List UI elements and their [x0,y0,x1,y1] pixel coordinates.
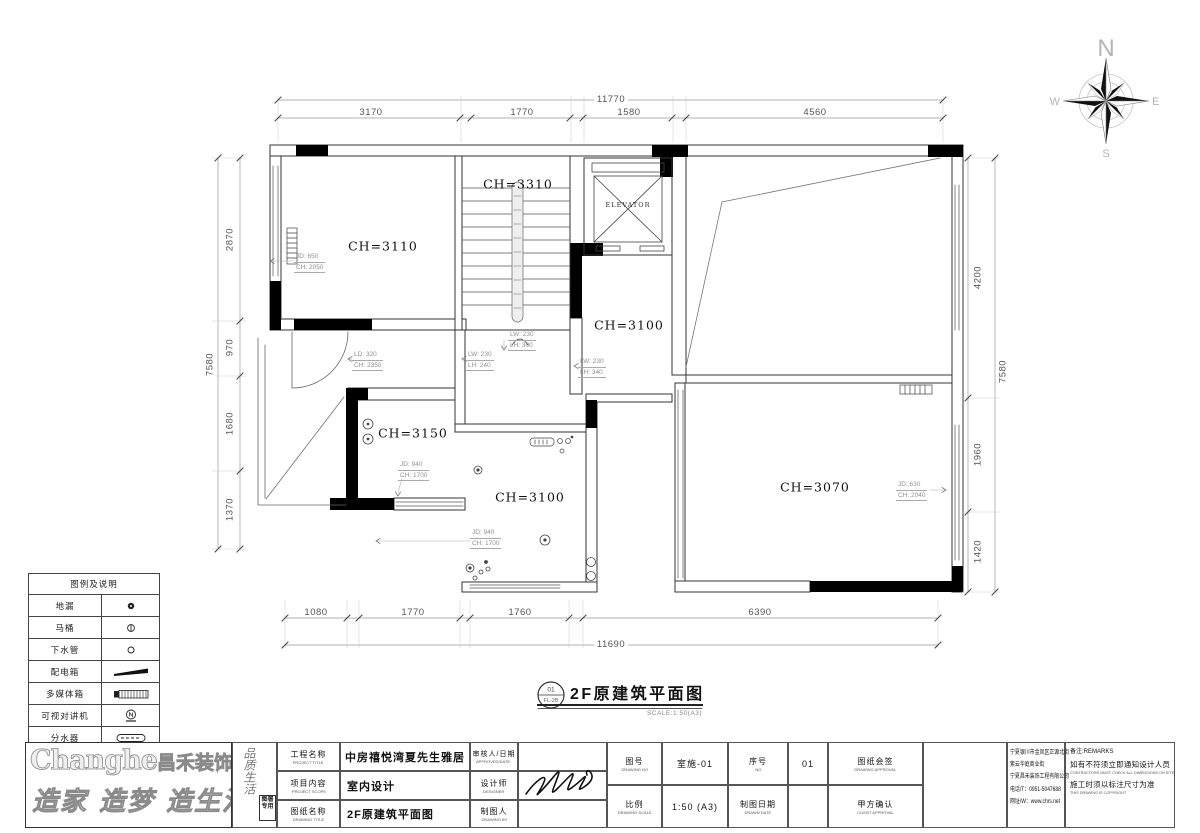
brand-name-en: Changhe [30,745,157,776]
toilet-icon [111,621,151,635]
annotation-jd940-lower: JD: 940CH: 1700 [470,528,501,549]
brand-name: Changhe昌禾装饰 [30,745,232,776]
cell-project-label: 工程名称 PROJECT TITLE [277,742,340,771]
date-label-en: DRAWN DATE [745,810,772,815]
project-title-value: 中房禧悦湾夏先生雅居 [345,749,465,765]
cell-drawing-value: 2F原建筑平面图 [340,800,470,828]
dimension-extension-lines [212,96,1000,648]
cell-project-value: 中房禧悦湾夏先生雅居 [340,742,470,771]
manifold-icon [530,436,573,453]
legend-label: 地漏 [29,595,101,616]
media-box-icon [111,687,151,701]
compass-rose: N W E S [1050,35,1160,160]
drain-pipe-icon [111,643,151,657]
cell-drawnby: 制图人 DRAWING BY [470,800,518,828]
remark-1-cn: 如有不符须立即通知设计人员 [1070,759,1170,770]
cell-scope-value: 室内设计 [340,771,470,800]
legend-row: 下水管 [29,639,159,661]
project-label-en: PROJECT TITLE [293,760,324,765]
dim-bottom-seg: 1080 [271,607,361,618]
drawingno-label-en: DRAWING NO [621,767,648,772]
dim-bottom-overall: 11690 [566,639,656,650]
dim-right-overall: 7580 [998,337,1009,407]
drawing-label-cn: 图纸名称 [291,806,327,817]
designer-label-cn: 设计师 [481,778,508,789]
approval-label-en: DRAWING APPROVAL [855,767,897,772]
plan-linework: N W E S [0,0,1200,833]
scope-label-en: PROJECT SCOPE [291,789,325,794]
legend-row: 配电箱 [29,661,159,683]
room-label-stair-ch3310: CH=3310 [483,177,553,192]
cell-signature-3 [518,800,607,828]
drawing-label-en: DRAWING TITLE [293,817,325,822]
designer-label-en: DESIGNER [483,789,504,794]
remark-1-en: CONTRACTORS MUST CHECK ALL DIMENSIONS ON… [1070,770,1165,775]
room-label-ch3150: CH=3150 [378,426,448,441]
company-info: 宁夏银川市金凤区正源北街 紫云华庭商业街 宁夏昌禾装饰工程有限公司 电话/T：0… [1007,742,1065,828]
legend-row: 多媒体箱 [29,683,159,705]
cell-drawingno-label: 图号 DRAWING NO [607,742,662,785]
brand-name-cn: 昌禾装饰 [157,752,232,774]
annotation-jd940-upper: JD: 940CH: 1700 [398,460,429,481]
dim-right-seg: 1420 [973,517,984,587]
dim-left-seg: 970 [225,313,236,383]
cell-approval-label: 图纸会签 DRAWING APPROVAL [828,742,923,785]
cell-signature-1 [518,742,607,771]
seq-label-en: NO [755,767,761,772]
room-label-ch3070: CH=3070 [780,480,850,495]
scale-label-en: DRAWING SCALE [618,810,652,815]
approval-label-cn: 图纸会签 [858,756,894,767]
compass-north-label: N [1097,35,1114,62]
legend-row: 可视对讲机 [29,705,159,727]
dim-left-overall: 7580 [205,330,216,400]
room-label-mid-ch3100: CH=3100 [594,318,664,333]
intercom-icon [111,708,151,724]
drawing-number-bubble: 01 [547,687,554,694]
legend-header: 图例及说明 [29,574,159,595]
company-address-2: 紫云华庭商业街 [1010,759,1053,768]
annotation-lw230-lh240: LW: 230LH: 240 [466,350,494,371]
room-label-bath-ch3100: CH=3100 [495,490,565,505]
drawing-sheet: N W E S CH=3110 CH=3310 ELEVATOR CH=3100… [0,0,1200,833]
legend-label: 马桶 [29,617,101,638]
drawingno-label-cn: 图号 [626,756,644,767]
dim-top-seg: 1770 [477,107,567,118]
dim-bottom-seg: 1760 [475,607,565,618]
room-label-ch3110: CH=3110 [348,239,418,254]
approval-stamp: 图署专用 [259,795,276,821]
scale-value: 1:50 (A3) [672,802,718,812]
compass-south-label: S [1102,148,1109,160]
annotation-lw230-lh300: LW: 230LH: 300 [508,330,536,351]
scope-label-cn: 项目内容 [291,778,327,789]
legend-row: 地漏 [29,595,159,617]
approved-label-cn: 审核人/日期 [473,749,516,759]
cell-scale-label: 比例 DRAWING SCALE [607,785,662,828]
project-scope-value: 室内设计 [347,778,395,794]
company-logo: Changhe昌禾装饰 造家 造梦 造生活 [25,742,232,828]
drawing-sheet-code: FL-2B [544,698,559,704]
cell-seq-value: 01 [788,742,828,785]
date-label-cn: 制图日期 [740,799,776,810]
compass-west-label: W [1050,96,1061,108]
cell-scope-label: 项目内容 PROJECT SCOPE [277,771,340,800]
legend-label: 下水管 [29,639,101,660]
floor-drain-icon [111,599,151,613]
toilet-icon [363,419,373,444]
cell-signature-2 [518,771,607,800]
door-swing [292,332,348,388]
client-label-en: CLIENT APPROVAL [857,810,894,815]
drawnby-label-cn: 制图人 [481,806,508,817]
legend-label: 可视对讲机 [29,705,101,726]
cell-date-label: 制图日期 DRAWN DATE [728,785,788,828]
annotation-jd630: JD: 630CH: 2040 [896,480,927,501]
legend-label: 多媒体箱 [29,683,101,704]
dimension-ticks [215,97,998,648]
cell-approved: 审核人/日期 APPROVED/DATE: [470,742,518,771]
dim-top-seg: 4560 [770,107,860,118]
seq-label-cn: 序号 [749,756,767,767]
power-box-icon [111,665,151,679]
company-name: 宁夏昌禾装饰工程有限公司 [1010,771,1053,780]
remark-2-en: THIS DRAWING IS COPYRIGHT [1070,790,1165,795]
annotation-lw230-lh340: LW: 230LH: 340 [578,357,606,378]
dim-right-seg: 4200 [973,243,984,313]
dim-bottom-seg: 1770 [368,607,458,618]
cell-client-label: 甲方确认 CLIENT APPROVAL [828,785,923,828]
calligraphy-column: 品质生活 图署专用 [232,742,277,828]
drawing-title-value: 2F原建筑平面图 [347,806,434,822]
annotation-jd650: JD: 650CH: 2050 [294,252,325,273]
remarks-box: 备注:REMARKS 如有不符须立即通知设计人员 CONTRACTORS MUS… [1065,742,1175,828]
legend-row: 马桶 [29,617,159,639]
drawing-title-text: 2F原建筑平面图 [570,680,705,704]
client-label-cn: 甲方确认 [858,799,894,810]
remark-2-cn: 施工时须以标注尺寸为准 [1070,779,1170,790]
drawing-scale-text: SCALE:1:50(A3) [592,710,702,717]
project-label-cn: 工程名称 [291,749,327,760]
ceiling-slope-line [686,158,940,367]
dim-bottom-seg: 6390 [715,607,805,618]
dim-left-seg: 1370 [225,475,236,545]
elevator-label: ELEVATOR [606,201,651,209]
dim-left-seg: 1680 [225,389,236,459]
compass-east-label: E [1152,96,1159,108]
drawnby-label-en: DRAWING BY [481,817,507,822]
annotation-ld320: LD: 320CH: 2350 [352,350,383,371]
cell-seq-label: 序号 NO [728,742,788,785]
cell-approval-signature [923,742,1007,828]
cell-drawingno-value: 室施-01 [662,742,728,785]
approved-label-en: APPROVED/DATE: [476,759,511,764]
cell-scale-value: 1:50 (A3) [662,785,728,828]
cell-designer: 设计师 DESIGNER [470,771,518,800]
drawingno-value: 室施-01 [677,757,713,770]
scale-label-cn: 比例 [626,799,644,810]
dim-left-seg: 2870 [225,205,236,275]
legend-label: 配电箱 [29,661,101,682]
calligraphy-text: 品质生活 [241,747,255,795]
remarks-label: 备注:REMARKS [1070,746,1170,755]
terrace-outline [258,338,346,505]
seq-value: 01 [802,759,814,769]
dim-top-overall: 11770 [566,94,656,105]
company-address-1: 宁夏银川市金凤区正源北街 [1010,747,1053,756]
dim-right-seg: 1960 [973,420,984,490]
cell-date-value [788,785,828,828]
dim-top-seg: 1580 [584,107,674,118]
cell-drawing-label: 图纸名称 DRAWING TITLE [277,800,340,828]
company-website: 网址/W：www.chrs.net [1010,796,1053,805]
dimension-lines [218,100,995,645]
legend-box: 图例及说明 地漏 马桶 下水管 配电箱 多媒体箱 [28,573,160,749]
floor-drain-icons [466,466,596,581]
company-phone: 电话/T：0951-5047688 [1010,784,1053,793]
dim-top-seg: 3170 [326,107,416,118]
brand-slogan: 造家 造梦 造生活 [32,781,232,818]
